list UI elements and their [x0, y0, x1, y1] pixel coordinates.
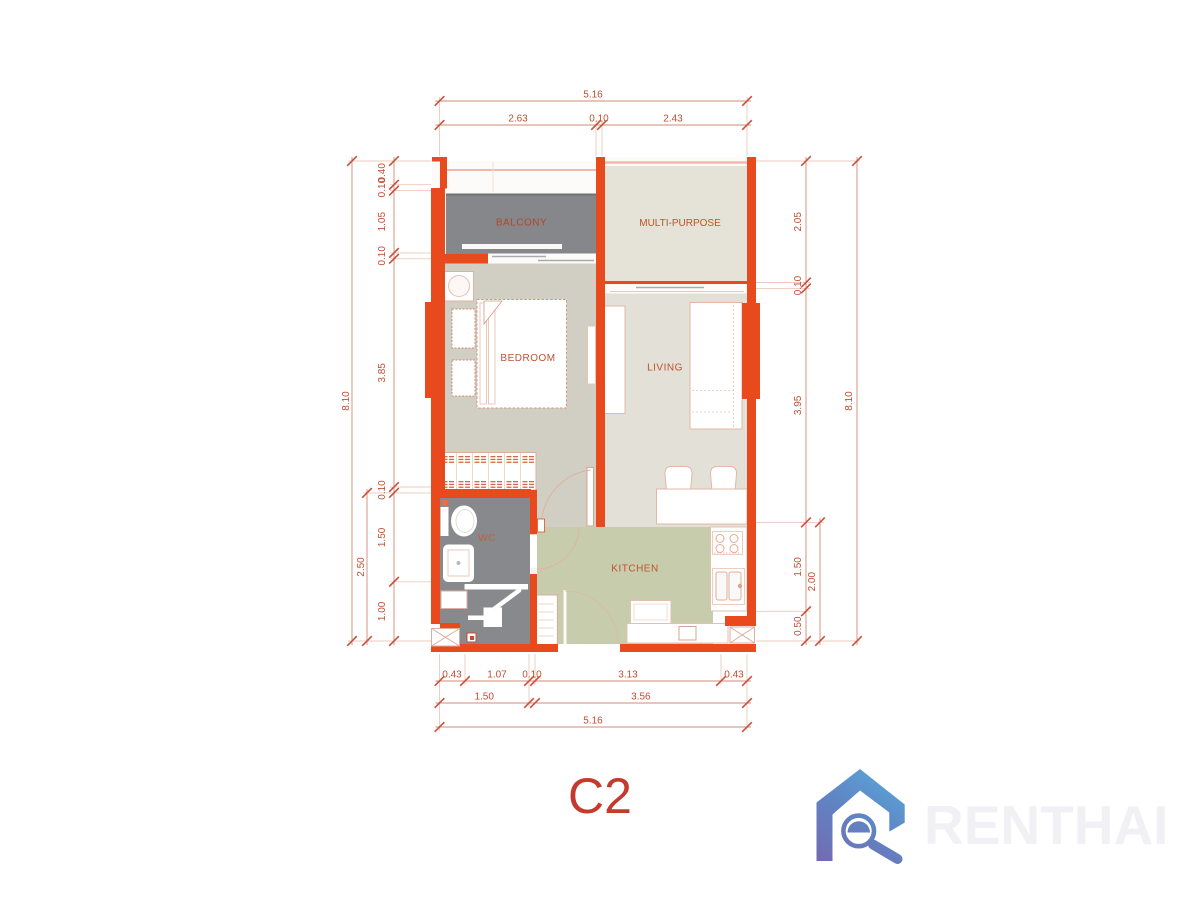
svg-text:1.50: 1.50 — [793, 557, 804, 577]
svg-text:2.50: 2.50 — [356, 557, 367, 577]
svg-text:2.63: 2.63 — [508, 114, 528, 125]
svg-text:0.10: 0.10 — [377, 480, 388, 500]
svg-text:3.56: 3.56 — [631, 692, 651, 703]
svg-text:1.05: 1.05 — [377, 212, 388, 232]
svg-text:C2: C2 — [568, 768, 632, 824]
svg-text:BALCONY: BALCONY — [496, 218, 547, 229]
svg-text:1.50: 1.50 — [377, 527, 388, 547]
svg-text:1.00: 1.00 — [377, 601, 388, 621]
svg-text:8.10: 8.10 — [341, 391, 352, 411]
svg-text:WC: WC — [478, 533, 496, 544]
svg-text:0.10: 0.10 — [589, 114, 609, 125]
svg-text:2.43: 2.43 — [663, 114, 683, 125]
svg-text:0.10: 0.10 — [793, 275, 804, 295]
svg-text:0.10: 0.10 — [522, 670, 542, 681]
svg-text:1.50: 1.50 — [474, 692, 494, 703]
svg-text:2.05: 2.05 — [793, 212, 804, 232]
svg-text:3.95: 3.95 — [793, 395, 804, 415]
svg-text:0.43: 0.43 — [442, 670, 462, 681]
svg-text:RENTHAI: RENTHAI — [924, 794, 1168, 856]
svg-text:8.10: 8.10 — [844, 391, 855, 411]
svg-text:3.85: 3.85 — [377, 363, 388, 383]
svg-text:BEDROOM: BEDROOM — [500, 353, 555, 364]
svg-text:5.16: 5.16 — [583, 716, 603, 727]
svg-text:5.16: 5.16 — [583, 90, 603, 101]
svg-text:0.10: 0.10 — [377, 246, 388, 266]
svg-text:KITCHEN: KITCHEN — [611, 564, 658, 575]
svg-text:0.50: 0.50 — [793, 616, 804, 636]
svg-text:3.13: 3.13 — [618, 670, 638, 681]
svg-text:MULTI-PURPOSE: MULTI-PURPOSE — [639, 218, 721, 229]
svg-text:0.43: 0.43 — [724, 670, 744, 681]
svg-text:0.10: 0.10 — [377, 177, 388, 197]
svg-text:LIVING: LIVING — [647, 363, 683, 374]
svg-text:2.00: 2.00 — [807, 572, 818, 592]
svg-text:1.07: 1.07 — [487, 670, 507, 681]
